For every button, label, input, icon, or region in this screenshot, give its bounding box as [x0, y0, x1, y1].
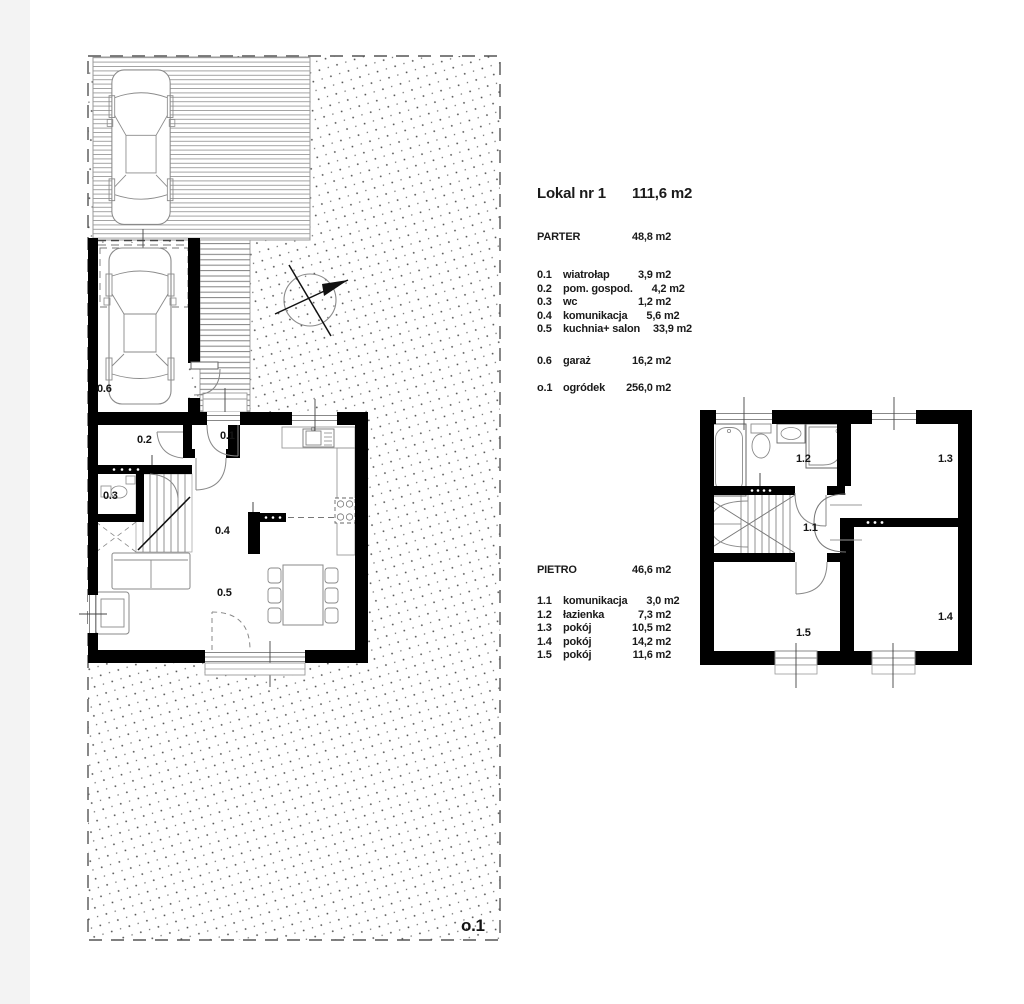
pietro-room-list: 1.1 komunikacja 3,0 m2 1.2 łazienka 7,3 … [537, 595, 671, 663]
legend-row: 1.1 komunikacja 3,0 m2 [537, 595, 671, 609]
room-label-1-5: 1.5 [796, 627, 811, 639]
room-label-1-2: 1.2 [796, 453, 811, 465]
room-code: 1.2 [537, 609, 563, 623]
room-area: 5,6 m2 [627, 310, 679, 324]
room-name: pokój [563, 649, 619, 663]
room-area: 16,2 m2 [619, 355, 671, 369]
upper-floor-plan: 1.2 1.3 1.1 1.5 1.4 [700, 397, 972, 688]
room-label-0-5: 0.5 [217, 587, 232, 599]
room-code: 1.3 [537, 622, 563, 636]
legend-row: 0.4 komunikacja 5,6 m2 [537, 310, 671, 324]
room-area: 256,0 m2 [619, 382, 671, 396]
room-area: 3,9 m2 [619, 269, 671, 283]
architectural-drawing: 0.6 [0, 0, 1024, 1004]
room-area: 11,6 m2 [619, 649, 671, 663]
room-name: komunikacja [563, 310, 627, 324]
floor-plan-sheet: 0.6 [0, 0, 1024, 1004]
room-label-0-1: 0.1 [220, 430, 235, 442]
legend-row: 1.3 pokój 10,5 m2 [537, 622, 671, 636]
garage-row: 0.6 garaż 16,2 m2 [537, 355, 671, 369]
room-name: komunikacja [563, 595, 627, 609]
room-name: pom. gospod. [563, 283, 633, 297]
room-name: pokój [563, 636, 619, 650]
floor-area: 48,8 m2 [619, 231, 671, 245]
floor-label: PIETRO [537, 564, 619, 578]
room-code: 0.5 [537, 323, 563, 337]
room-area: 10,5 m2 [619, 622, 671, 636]
room-area: 1,2 m2 [619, 296, 671, 310]
room-code: 1.5 [537, 649, 563, 663]
floor-area: 46,6 m2 [619, 564, 671, 578]
garden-row: o.1 ogródek 256,0 m2 [537, 382, 671, 396]
room-label-1-4: 1.4 [938, 611, 954, 623]
room-area: 4,2 m2 [633, 283, 685, 297]
room-name: pokój [563, 622, 619, 636]
room-label-0-4: 0.4 [215, 525, 231, 537]
carport-roof [93, 57, 310, 240]
room-code: 0.4 [537, 310, 563, 324]
kitchen-sink [303, 427, 334, 447]
garden-label: o.1 [461, 916, 485, 935]
floor-label: PARTER [537, 231, 619, 245]
footpath [200, 240, 250, 418]
room-code: 0.6 [537, 355, 563, 369]
legend-row: 0.1 wiatrołap 3,9 m2 [537, 269, 671, 283]
legend-row: 1.5 pokój 11,6 m2 [537, 649, 671, 663]
room-code: 1.1 [537, 595, 563, 609]
room-code: o.1 [537, 382, 563, 396]
room-area: 33,9 m2 [640, 323, 692, 337]
room-area: 3,0 m2 [627, 595, 679, 609]
room-area: 7,3 m2 [619, 609, 671, 623]
room-label-0-3: 0.3 [103, 490, 118, 502]
room-code: 1.4 [537, 636, 563, 650]
room-code: 0.2 [537, 283, 563, 297]
stove [335, 498, 355, 523]
garage-car [104, 248, 176, 404]
room-name: ogródek [563, 382, 619, 396]
room-code: 0.3 [537, 296, 563, 310]
room-label-1-1: 1.1 [803, 522, 818, 534]
pietro-header: PIETRO 46,6 m2 [537, 564, 671, 578]
legend-row: 0.5 kuchnia+ salon 33,9 m2 [537, 323, 671, 337]
unit-area: 111,6 m2 [632, 185, 692, 202]
parter-header: PARTER 48,8 m2 [537, 231, 671, 245]
room-name: wc [563, 296, 619, 310]
legend-row: 1.4 pokój 14,2 m2 [537, 636, 671, 650]
parter-room-list: 0.1 wiatrołap 3,9 m2 0.2 pom. gospod. 4,… [537, 269, 671, 337]
legend-row: 1.2 łazienka 7,3 m2 [537, 609, 671, 623]
room-label-1-3: 1.3 [938, 453, 953, 465]
room-name: wiatrołap [563, 269, 619, 283]
legend-row: 0.2 pom. gospod. 4,2 m2 [537, 283, 671, 297]
room-area: 14,2 m2 [619, 636, 671, 650]
room-code: 0.1 [537, 269, 563, 283]
ground-floor-plan: 0.2 0.1 0.3 0.4 0.5 [79, 399, 368, 687]
room-name: kuchnia+ salon [563, 323, 640, 337]
unit-name: Lokal nr 1 [537, 185, 632, 202]
room-name: garaż [563, 355, 619, 369]
legend-row: 0.3 wc 1,2 m2 [537, 296, 671, 310]
legend-title: Lokal nr 1111,6 m2 [537, 185, 757, 202]
room-name: łazienka [563, 609, 619, 623]
driveway-car [107, 70, 175, 224]
room-label-0-6: 0.6 [97, 383, 112, 395]
room-label-0-2: 0.2 [137, 434, 152, 446]
